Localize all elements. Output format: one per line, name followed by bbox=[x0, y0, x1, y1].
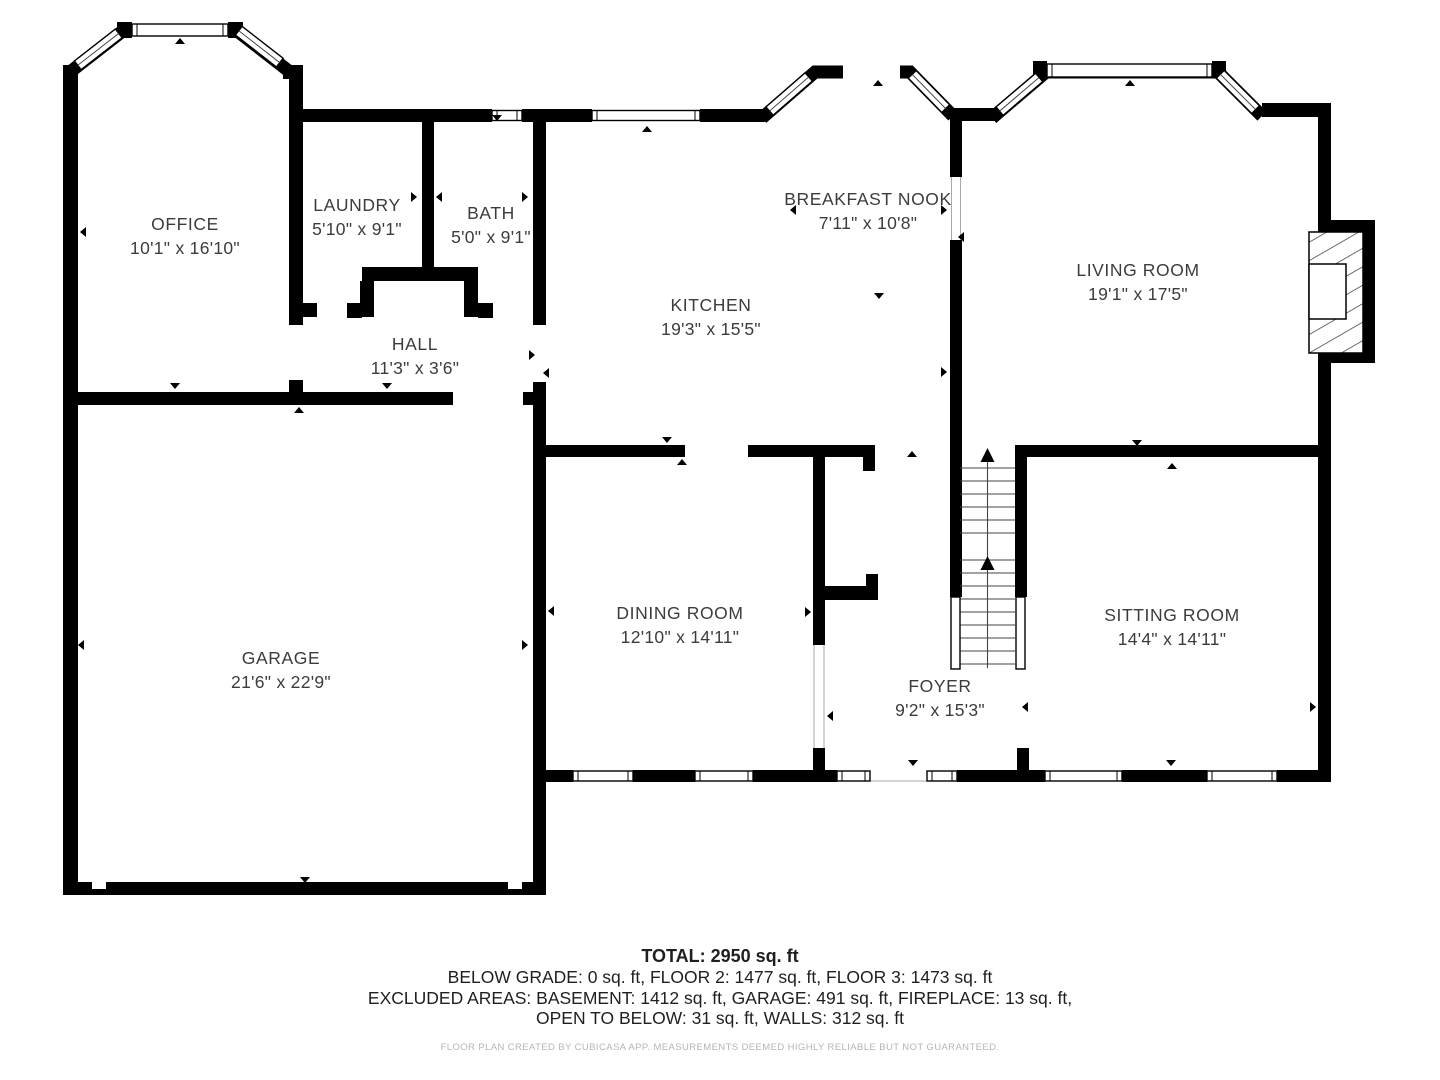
wall bbox=[1015, 445, 1330, 457]
wall bbox=[295, 303, 317, 317]
window bbox=[132, 24, 228, 36]
room-dims: 21'6" x 22'9" bbox=[231, 670, 331, 694]
wall bbox=[533, 109, 546, 325]
excluded-areas-text: EXCLUDED AREAS: BASEMENT: 1412 sq. ft, G… bbox=[0, 988, 1440, 1009]
room-dims: 11'3" x 3'6" bbox=[371, 356, 460, 380]
office-bay-window-left bbox=[74, 29, 122, 70]
room-dims: 14'4" x 14'11" bbox=[1104, 627, 1240, 651]
room-name: LIVING ROOM bbox=[1076, 258, 1199, 282]
room-name: DINING ROOM bbox=[616, 601, 743, 625]
opening bbox=[843, 64, 900, 79]
wall bbox=[422, 109, 434, 272]
dimension-arrow-icon bbox=[170, 383, 180, 389]
room-name: BATH bbox=[451, 201, 531, 225]
window bbox=[592, 111, 700, 121]
wall bbox=[748, 445, 875, 457]
room-label-living-room: LIVING ROOM 19'1" x 17'5" bbox=[1076, 258, 1199, 306]
wall bbox=[63, 392, 453, 405]
room-name: KITCHEN bbox=[661, 293, 761, 317]
dimension-arrow-icon bbox=[529, 350, 535, 360]
wall bbox=[63, 392, 78, 895]
walls bbox=[63, 22, 1331, 895]
stair-rail-right bbox=[1016, 597, 1025, 669]
room-dims: 9'2" x 15'3" bbox=[895, 698, 985, 722]
wall bbox=[360, 281, 374, 317]
floor-plan-page: OFFICE 10'1" x 16'10" LAUNDRY 5'10" x 9'… bbox=[0, 0, 1440, 1080]
dimension-arrow-icon bbox=[175, 38, 185, 44]
dimension-arrow-icon bbox=[522, 640, 528, 650]
dimension-arrow-icon bbox=[827, 711, 833, 721]
wall bbox=[753, 770, 837, 782]
living-bay-window-left bbox=[996, 73, 1043, 115]
wall bbox=[957, 770, 1045, 782]
dimension-arrow-icon bbox=[941, 367, 947, 377]
window bbox=[1045, 771, 1122, 781]
fireplace bbox=[1309, 220, 1375, 363]
wall bbox=[522, 109, 592, 122]
wall bbox=[700, 109, 765, 122]
dimension-arrow-icon bbox=[78, 640, 84, 650]
room-label-dining-room: DINING ROOM 12'10" x 14'11" bbox=[616, 601, 743, 649]
room-label-garage: GARAGE 21'6" x 22'9" bbox=[231, 646, 331, 694]
window bbox=[1047, 64, 1212, 77]
wall bbox=[533, 392, 546, 895]
wall bbox=[1318, 458, 1331, 782]
room-dims: 5'0" x 9'1" bbox=[451, 225, 531, 249]
living-bay-window-right bbox=[1216, 70, 1259, 113]
dimension-arrow-icon bbox=[1125, 80, 1135, 86]
room-label-kitchen: KITCHEN 19'3" x 15'5" bbox=[661, 293, 761, 341]
window bbox=[573, 771, 633, 781]
opening bbox=[508, 882, 522, 889]
stair-up-arrow-icon bbox=[981, 556, 995, 570]
dimension-arrow-icon bbox=[677, 459, 687, 465]
room-label-laundry: LAUNDRY 5'10" x 9'1" bbox=[312, 193, 402, 241]
room-label-office: OFFICE 10'1" x 16'10" bbox=[130, 212, 240, 260]
dimension-arrow-icon bbox=[805, 607, 811, 617]
window bbox=[1207, 771, 1277, 781]
room-name: GARAGE bbox=[231, 646, 331, 670]
dimension-arrow-icon bbox=[294, 407, 304, 413]
breakfast-bay-window-right bbox=[908, 70, 949, 112]
wall bbox=[63, 65, 78, 403]
room-label-hall: HALL 11'3" x 3'6" bbox=[371, 332, 460, 380]
wall bbox=[63, 882, 546, 895]
room-dims: 19'3" x 15'5" bbox=[661, 317, 761, 341]
floor-areas-text: BELOW GRADE: 0 sq. ft, FLOOR 2: 1477 sq.… bbox=[0, 967, 1440, 988]
dimension-arrow-icon bbox=[907, 451, 917, 457]
room-dims: 10'1" x 16'10" bbox=[130, 236, 240, 260]
dimension-arrow-icon bbox=[908, 760, 918, 766]
staircase bbox=[951, 448, 1025, 669]
room-name: OFFICE bbox=[130, 212, 240, 236]
opening bbox=[92, 882, 106, 889]
room-name: BREAKFAST NOOK bbox=[784, 187, 952, 211]
room-label-bath: BATH 5'0" x 9'1" bbox=[451, 201, 531, 249]
dimension-arrow-icon bbox=[873, 80, 883, 86]
floor-plan-drawing bbox=[0, 0, 1440, 1080]
dimension-arrow-icon bbox=[548, 606, 554, 616]
room-dims: 5'10" x 9'1" bbox=[312, 217, 402, 241]
wall bbox=[295, 109, 492, 122]
wall bbox=[863, 457, 875, 471]
dimension-arrow-icon bbox=[411, 192, 417, 202]
dimension-arrow-icon bbox=[80, 227, 86, 237]
dimension-arrows bbox=[78, 38, 1316, 883]
room-dims: 12'10" x 14'11" bbox=[616, 625, 743, 649]
total-area-text: TOTAL: 2950 sq. ft bbox=[0, 946, 1440, 967]
dimension-arrow-icon bbox=[642, 126, 652, 132]
wall bbox=[1015, 445, 1027, 597]
excluded-areas-text-2: OPEN TO BELOW: 31 sq. ft, WALLS: 312 sq.… bbox=[0, 1008, 1440, 1029]
wall bbox=[866, 574, 878, 588]
room-name: LAUNDRY bbox=[312, 193, 402, 217]
room-name: FOYER bbox=[895, 674, 985, 698]
wall bbox=[533, 445, 685, 457]
room-dims: 19'1" x 17'5" bbox=[1076, 282, 1199, 306]
wall bbox=[478, 303, 493, 318]
dimension-arrow-icon bbox=[874, 293, 884, 299]
stair-up-arrow-icon bbox=[981, 448, 995, 462]
stair-rail-left bbox=[951, 597, 960, 669]
wall bbox=[950, 240, 962, 597]
window bbox=[695, 771, 753, 781]
wall bbox=[362, 267, 478, 281]
disclaimer-text: FLOOR PLAN CREATED BY CUBICASA APP. MEAS… bbox=[0, 1042, 1440, 1053]
room-name: SITTING ROOM bbox=[1104, 603, 1240, 627]
wall bbox=[813, 445, 825, 645]
wall bbox=[464, 281, 478, 317]
room-label-foyer: FOYER 9'2" x 15'3" bbox=[895, 674, 985, 722]
wall bbox=[823, 586, 878, 600]
room-dims: 7'11" x 10'8" bbox=[784, 211, 952, 235]
window bbox=[927, 771, 957, 781]
dimension-arrow-icon bbox=[1166, 760, 1176, 766]
room-label-sitting-room: SITTING ROOM 14'4" x 14'11" bbox=[1104, 603, 1240, 651]
room-name: HALL bbox=[371, 332, 460, 356]
office-bay-window-right bbox=[235, 26, 283, 67]
summary-footer: TOTAL: 2950 sq. ft BELOW GRADE: 0 sq. ft… bbox=[0, 946, 1440, 1053]
dimension-arrow-icon bbox=[382, 383, 392, 389]
dimension-arrow-icon bbox=[436, 192, 442, 202]
window bbox=[837, 771, 870, 781]
dimension-arrow-icon bbox=[543, 368, 549, 378]
wall bbox=[1122, 770, 1207, 782]
dimension-arrow-icon bbox=[1310, 702, 1316, 712]
wall bbox=[633, 770, 695, 782]
dimension-arrow-icon bbox=[1167, 463, 1177, 469]
room-label-breakfast-nook: BREAKFAST NOOK 7'11" x 10'8" bbox=[784, 187, 952, 235]
wall bbox=[950, 112, 962, 177]
breakfast-bay-window-left bbox=[766, 73, 812, 115]
wall bbox=[1277, 770, 1331, 782]
dimension-arrow-icon bbox=[1022, 702, 1028, 712]
wall bbox=[533, 770, 573, 782]
wall-openings bbox=[92, 64, 900, 889]
dimension-arrow-icon bbox=[662, 437, 672, 443]
wall bbox=[347, 303, 362, 318]
